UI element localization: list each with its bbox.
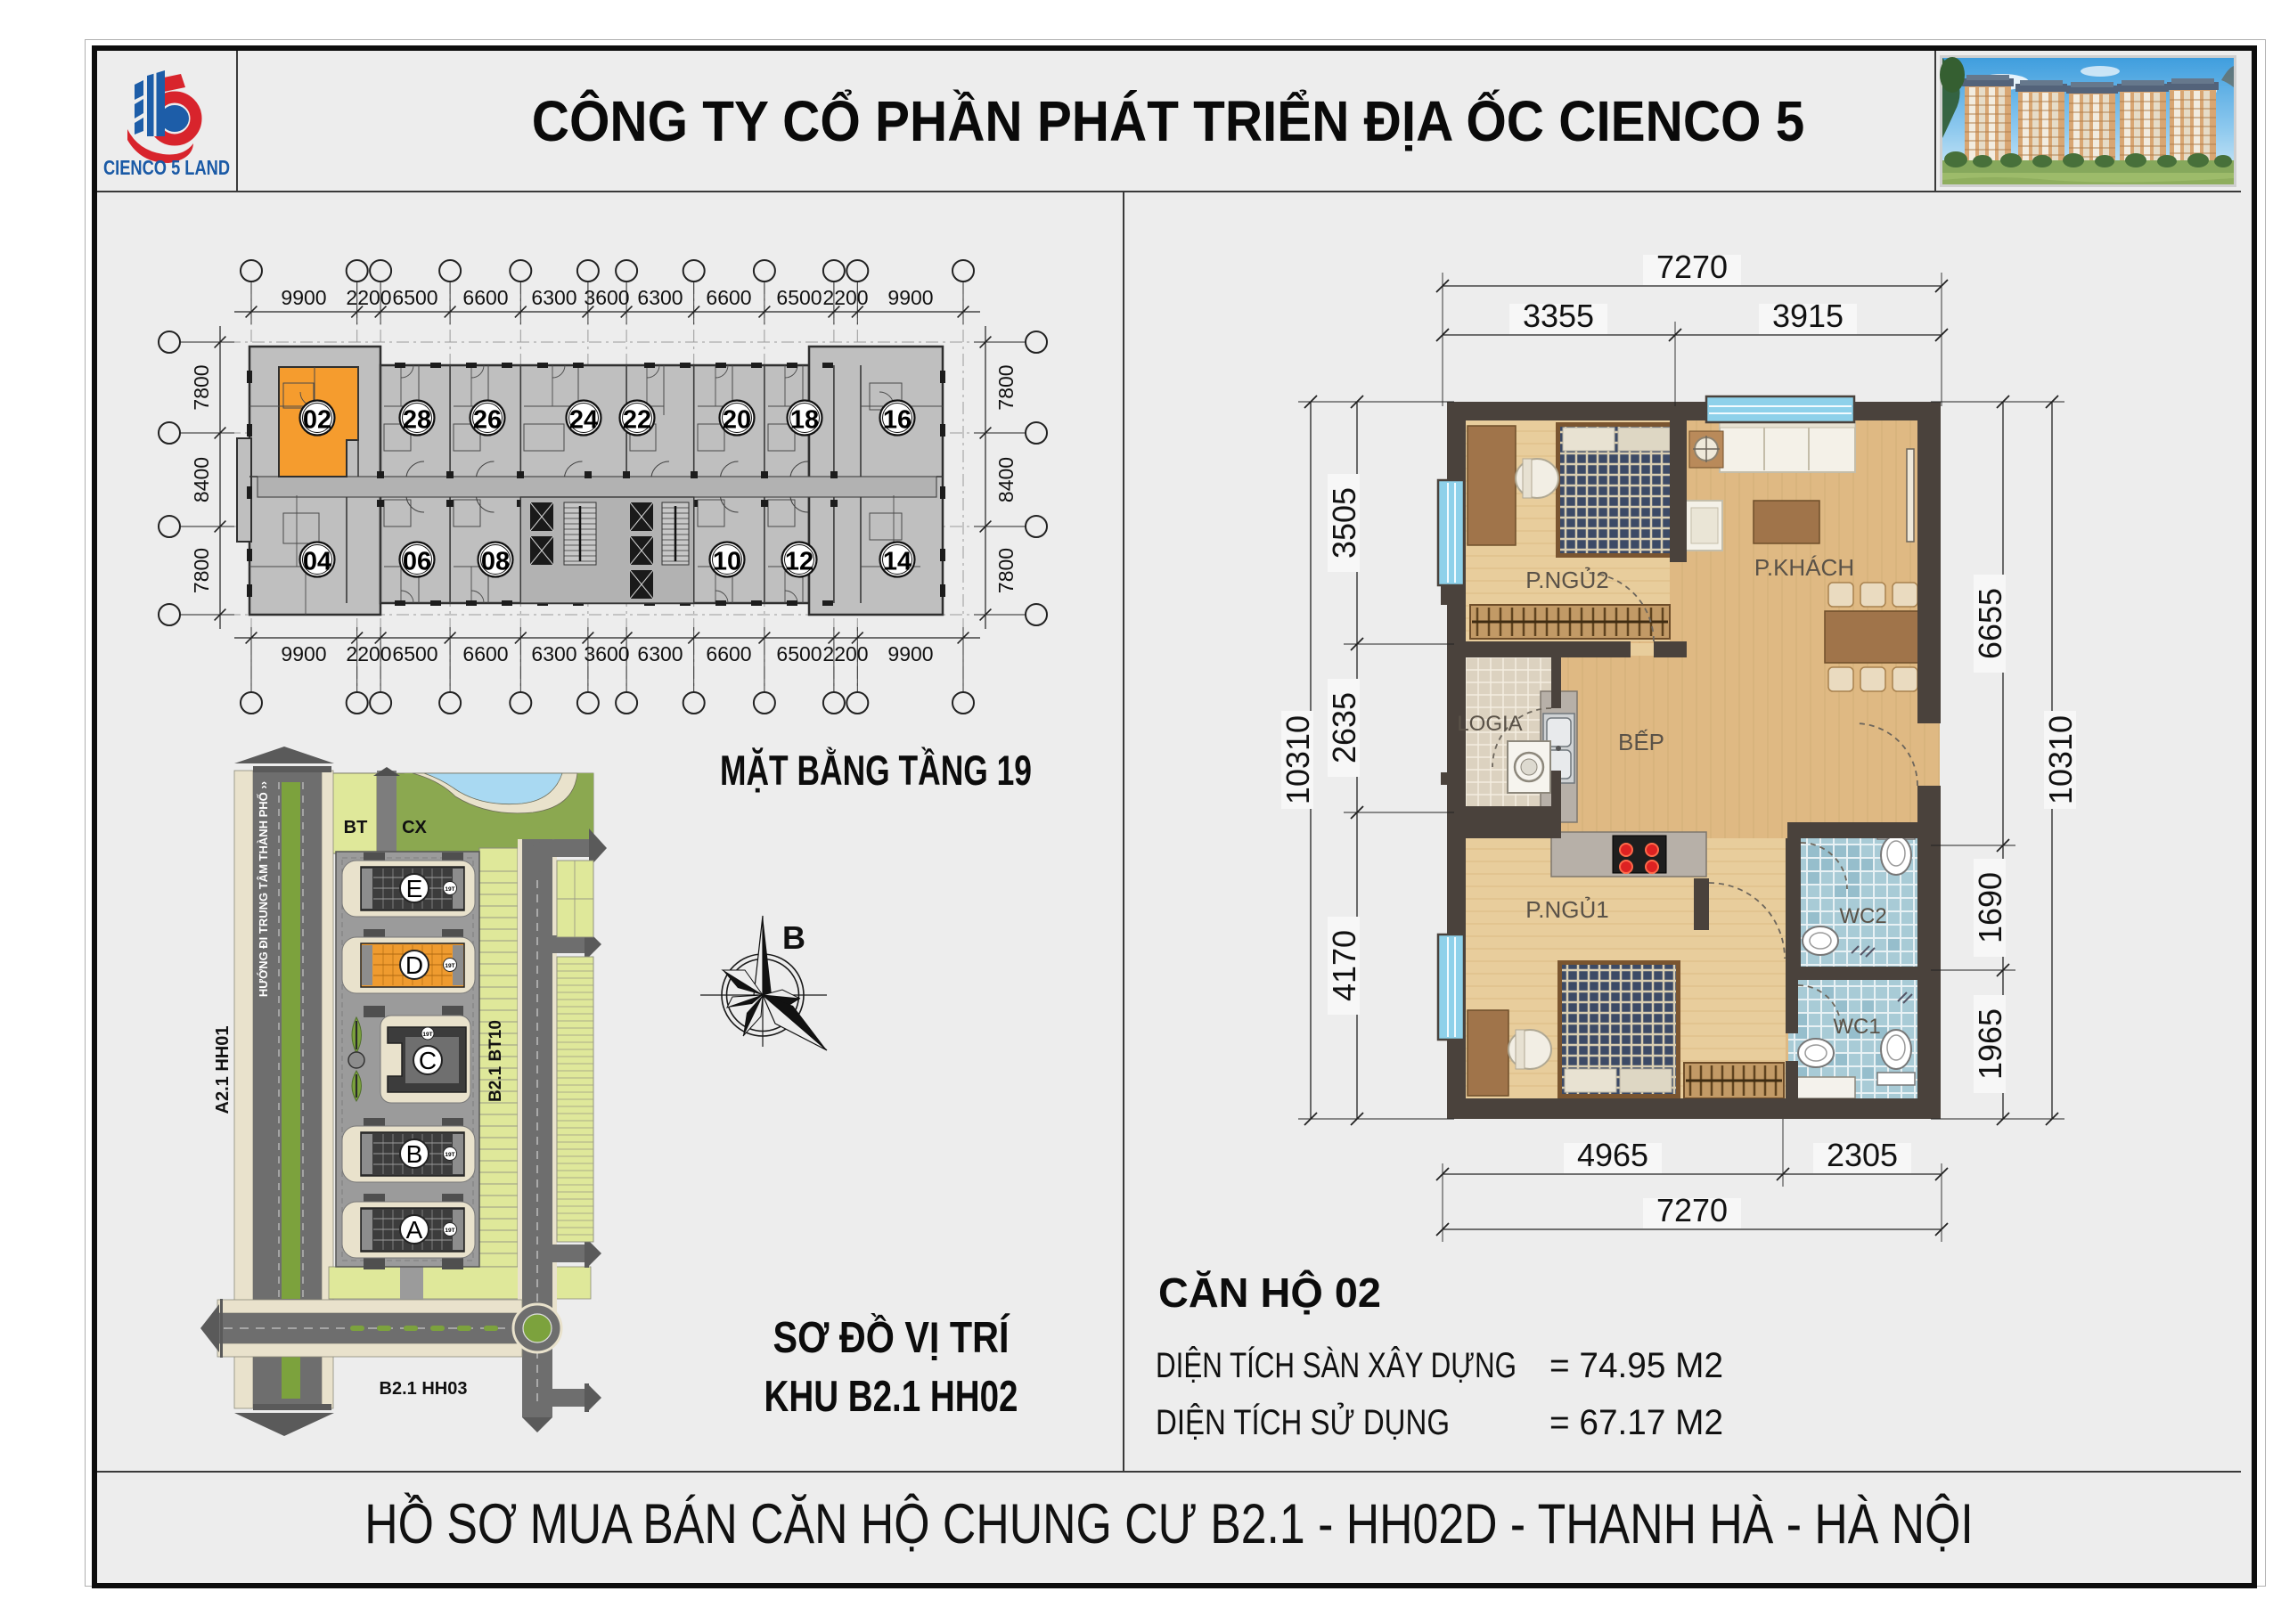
svg-text:26: 26 <box>473 406 502 435</box>
svg-text:6500: 6500 <box>392 286 437 309</box>
svg-text:KHU B2.1 HH02: KHU B2.1 HH02 <box>764 1373 1018 1421</box>
svg-text:WC1: WC1 <box>1833 1015 1880 1039</box>
svg-text:4170: 4170 <box>1326 930 1362 1001</box>
svg-text:16: 16 <box>883 406 912 435</box>
svg-text:22: 22 <box>623 406 651 435</box>
svg-text:10: 10 <box>713 548 741 576</box>
svg-text:SƠ ĐỒ VỊ TRÍ: SƠ ĐỒ VỊ TRÍ <box>773 1313 1010 1362</box>
svg-text:2635: 2635 <box>1326 692 1362 763</box>
svg-text:6300: 6300 <box>531 642 576 665</box>
svg-text:CX: CX <box>402 818 427 837</box>
svg-text:04: 04 <box>303 548 331 576</box>
svg-text:3355: 3355 <box>1523 298 1594 334</box>
svg-text:9900: 9900 <box>281 642 326 665</box>
svg-text:18: 18 <box>790 406 819 435</box>
svg-text:C: C <box>419 1047 437 1074</box>
svg-text:6300: 6300 <box>531 286 576 309</box>
svg-text:6600: 6600 <box>462 286 508 309</box>
svg-text:28: 28 <box>403 406 431 435</box>
svg-text:A2.1 HH01: A2.1 HH01 <box>213 1026 233 1114</box>
svg-text:9900: 9900 <box>887 642 933 665</box>
svg-text:6655: 6655 <box>1972 588 2008 659</box>
svg-text:B2.1 BT10: B2.1 BT10 <box>486 1020 505 1102</box>
svg-text:2200: 2200 <box>822 642 868 665</box>
svg-text:6300: 6300 <box>637 286 683 309</box>
svg-text:CĂN HỘ 02: CĂN HỘ 02 <box>1158 1269 1381 1316</box>
svg-text:6600: 6600 <box>706 286 751 309</box>
svg-text:19T: 19T <box>445 1152 454 1158</box>
svg-text:6600: 6600 <box>462 642 508 665</box>
svg-text:08: 08 <box>481 548 510 576</box>
svg-text:02: 02 <box>303 406 331 435</box>
svg-text:24: 24 <box>569 406 598 435</box>
svg-text:3600: 3600 <box>584 642 629 665</box>
svg-text:A: A <box>406 1216 423 1244</box>
svg-text:19T: 19T <box>445 1228 454 1234</box>
svg-text:3505: 3505 <box>1326 487 1362 559</box>
svg-text:7270: 7270 <box>1656 1192 1728 1228</box>
svg-text:B2.1 HH03: B2.1 HH03 <box>380 1379 468 1399</box>
svg-text:HƯỚNG ĐI TRUNG TÂM THÀNH PHỐ ›: HƯỚNG ĐI TRUNG TÂM THÀNH PHỐ ›› <box>257 781 270 997</box>
svg-text:9900: 9900 <box>887 286 933 309</box>
svg-text:6500: 6500 <box>392 642 437 665</box>
svg-text:12: 12 <box>785 548 813 576</box>
svg-text:19T: 19T <box>445 886 454 893</box>
svg-text:6500: 6500 <box>776 642 822 665</box>
svg-text:7800: 7800 <box>994 364 1018 410</box>
svg-text:1690: 1690 <box>1972 872 2008 943</box>
svg-text:DIỆN TÍCH SỬ DỤNG: DIỆN TÍCH SỬ DỤNG <box>1156 1401 1450 1442</box>
svg-text:BẾP: BẾP <box>1618 729 1664 755</box>
svg-text:14: 14 <box>883 548 912 576</box>
svg-text:P.KHÁCH: P.KHÁCH <box>1754 554 1854 581</box>
svg-text:10310: 10310 <box>2042 715 2079 804</box>
svg-text:P.NGỦ2: P.NGỦ2 <box>1525 566 1608 593</box>
svg-text:19T: 19T <box>445 963 454 969</box>
svg-text:20: 20 <box>723 406 751 435</box>
svg-text:6300: 6300 <box>637 642 683 665</box>
svg-text:19T: 19T <box>422 1032 432 1038</box>
svg-text:7800: 7800 <box>190 364 213 410</box>
svg-text:WC2: WC2 <box>1839 904 1886 928</box>
svg-text:DIỆN TÍCH SÀN XÂY DỰNG: DIỆN TÍCH SÀN XÂY DỰNG <box>1156 1345 1517 1385</box>
svg-text:2305: 2305 <box>1827 1137 1898 1173</box>
svg-text:06: 06 <box>403 548 431 576</box>
svg-text:1965: 1965 <box>1972 1008 2008 1080</box>
svg-text:E: E <box>406 875 423 902</box>
svg-text:9900: 9900 <box>281 286 326 309</box>
svg-text:3600: 3600 <box>584 286 629 309</box>
svg-text:P.NGỦ1: P.NGỦ1 <box>1525 895 1608 923</box>
svg-text:8400: 8400 <box>994 457 1018 502</box>
svg-text:= 67.17 M2: = 67.17 M2 <box>1549 1403 1723 1442</box>
svg-text:7800: 7800 <box>190 548 213 593</box>
svg-text:8400: 8400 <box>190 457 213 502</box>
svg-text:2200: 2200 <box>346 286 391 309</box>
svg-text:10310: 10310 <box>1279 715 1316 804</box>
svg-text:D: D <box>405 951 423 979</box>
svg-text:LOGIA: LOGIA <box>1457 712 1522 736</box>
svg-text:7800: 7800 <box>994 548 1018 593</box>
svg-text:6500: 6500 <box>776 286 822 309</box>
svg-text:2200: 2200 <box>822 286 868 309</box>
svg-text:MẶT BẰNG TẦNG 19: MẶT BẰNG TẦNG 19 <box>720 747 1032 794</box>
svg-text:B: B <box>782 919 805 956</box>
svg-text:7270: 7270 <box>1656 249 1728 285</box>
svg-text:3915: 3915 <box>1772 298 1844 334</box>
svg-text:= 74.95 M2: = 74.95 M2 <box>1549 1346 1723 1385</box>
svg-text:4965: 4965 <box>1577 1137 1648 1173</box>
svg-text:2200: 2200 <box>346 642 391 665</box>
svg-text:CIENCO 5 LAND: CIENCO 5 LAND <box>103 156 230 179</box>
svg-text:B: B <box>406 1140 423 1168</box>
svg-text:6600: 6600 <box>706 642 751 665</box>
svg-text:BT: BT <box>344 818 368 837</box>
